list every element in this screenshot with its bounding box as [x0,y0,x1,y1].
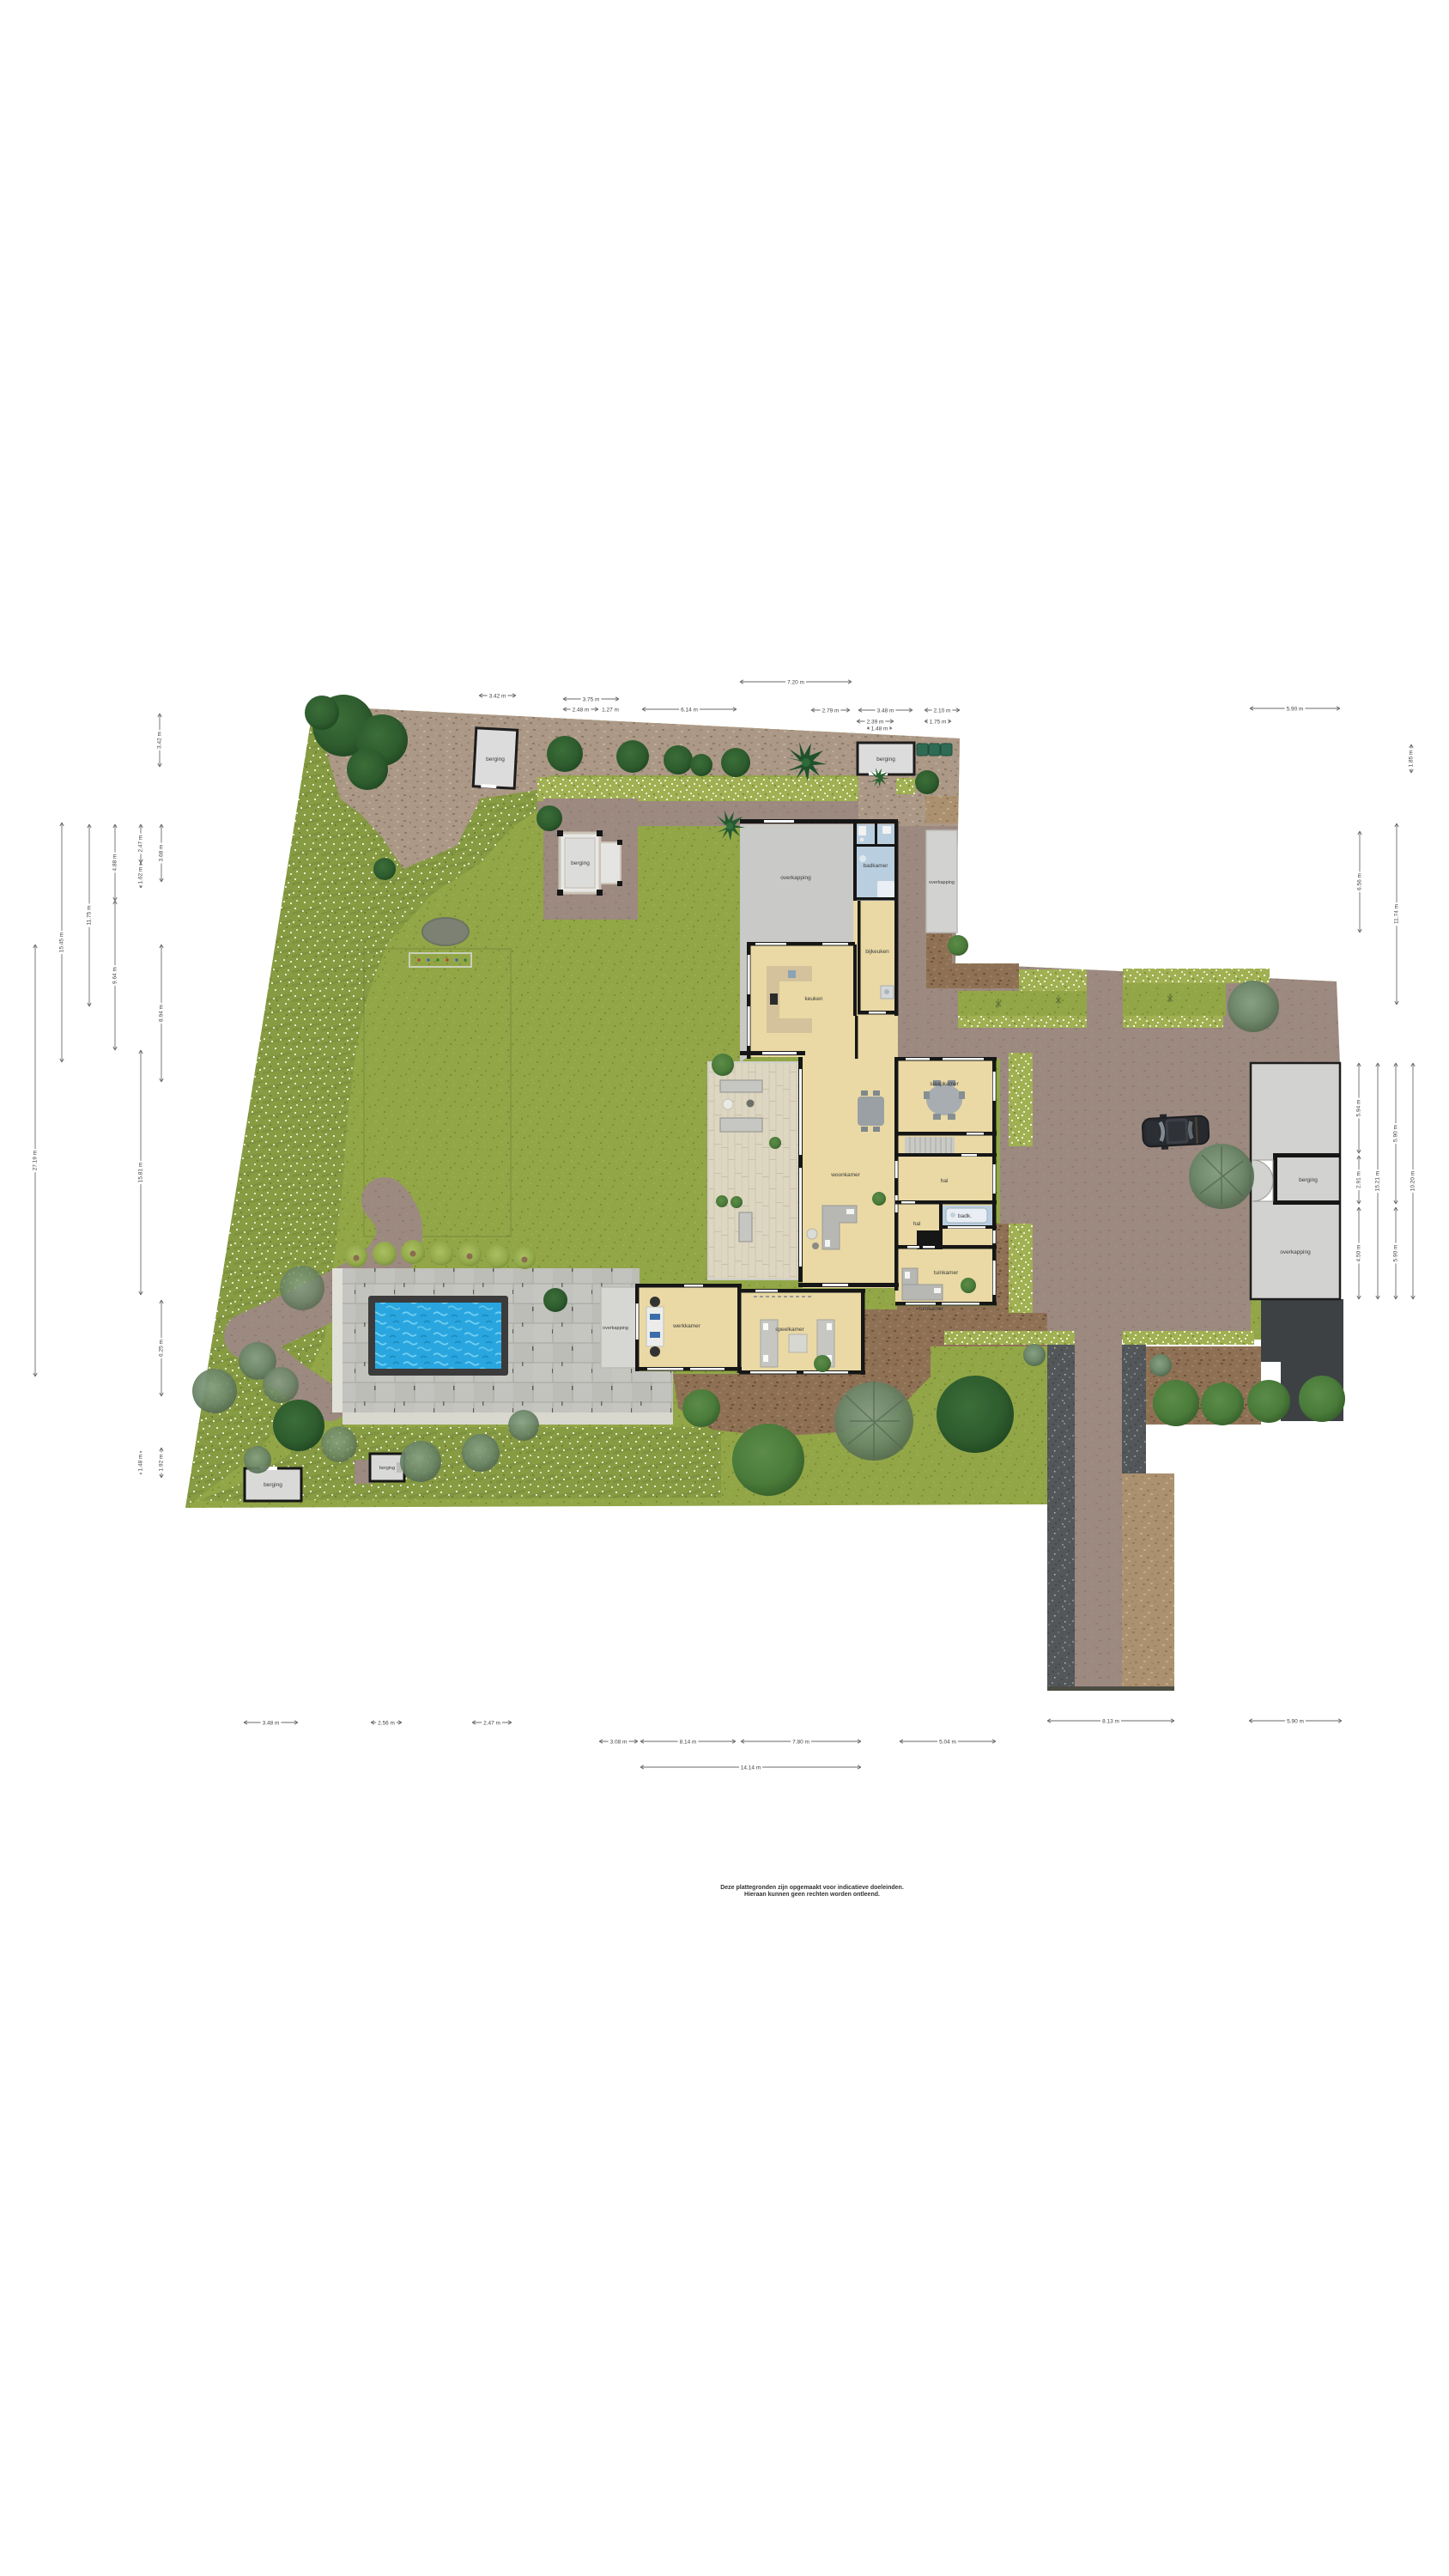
svg-text:11.75 m: 11.75 m [87,905,93,925]
svg-text:6.56 m: 6.56 m [1357,873,1363,890]
svg-text:5.04 m: 5.04 m [939,1739,956,1745]
svg-text:3.75 m: 3.75 m [583,696,600,702]
svg-text:1.48 m: 1.48 m [138,1455,144,1472]
svg-text:Deze plattegronden zijn opgema: Deze plattegronden zijn opgemaakt voor i… [720,1885,904,1891]
svg-text:hal: hal [941,1178,949,1184]
svg-text:hal: hal [913,1221,921,1227]
svg-text:5.90 m: 5.90 m [1393,1245,1399,1262]
svg-text:4.50 m: 4.50 m [1356,1245,1362,1262]
svg-text:overkapping: overkapping [780,875,811,881]
svg-text:keuken: keuken [805,996,823,1002]
svg-text:15.21 m: 15.21 m [1375,1171,1381,1192]
svg-text:3.68 m: 3.68 m [159,845,165,862]
svg-text:speelkamer: speelkamer [775,1327,804,1333]
svg-text:2.47 m: 2.47 m [138,835,144,853]
svg-text:1.48 m: 1.48 m [871,726,888,732]
svg-text:1.62 m: 1.62 m [138,867,144,884]
svg-text:8.94 m: 8.94 m [159,1005,165,1022]
svg-text:berging: berging [1299,1177,1318,1183]
svg-text:1.85 m: 1.85 m [1409,750,1415,768]
svg-text:2.56 m: 2.56 m [378,1720,395,1726]
svg-text:werkkamer: werkkamer [672,1323,701,1329]
svg-text:berging: berging [876,756,895,762]
svg-text:overkapping: overkapping [603,1326,628,1331]
svg-text:27.19 m: 27.19 m [33,1151,39,1171]
svg-text:1.27 m: 1.27 m [602,707,619,713]
svg-text:3.08 m: 3.08 m [610,1739,627,1745]
svg-text:2.48 m: 2.48 m [573,707,590,713]
svg-text:overkapping: overkapping [1280,1249,1311,1255]
svg-text:5.90 m: 5.90 m [1393,1125,1399,1142]
svg-text:15.45 m: 15.45 m [59,933,65,953]
svg-text:2.39 m: 2.39 m [867,719,884,725]
svg-text:1.75 m: 1.75 m [930,719,947,725]
svg-text:woonkamer: woonkamer [830,1172,860,1178]
svg-text:15.81 m: 15.81 m [138,1163,144,1183]
svg-text:7.80 m: 7.80 m [792,1739,809,1745]
svg-text:badkamer: badkamer [864,863,889,869]
svg-text:tuinkamer: tuinkamer [919,1306,944,1312]
svg-text:6.14 m: 6.14 m [681,707,698,713]
svg-text:2.10 m: 2.10 m [934,708,951,714]
svg-text:5.94 m: 5.94 m [1356,1100,1362,1117]
svg-text:3.42 m: 3.42 m [489,693,506,699]
svg-text:4.88 m: 4.88 m [112,854,118,872]
svg-text:7.20 m: 7.20 m [787,679,804,685]
svg-text:3.48 m: 3.48 m [877,708,894,714]
svg-text:11.74 m: 11.74 m [1394,904,1400,924]
svg-text:berging: berging [379,1466,395,1471]
svg-text:berging: berging [264,1482,282,1488]
svg-text:berging: berging [486,756,505,762]
svg-text:8.13 m: 8.13 m [1102,1718,1119,1724]
svg-text:8.14 m: 8.14 m [680,1739,697,1745]
svg-text:2.79 m: 2.79 m [822,708,840,714]
svg-text:1.92 m: 1.92 m [159,1455,165,1472]
svg-text:badk.: badk. [958,1213,972,1219]
svg-text:3.42 m: 3.42 m [157,732,163,749]
svg-text:5.90 m: 5.90 m [1287,1718,1304,1724]
svg-text:6.25 m: 6.25 m [159,1340,165,1357]
svg-text:berging: berging [571,860,590,866]
svg-text:slaapkamer: slaapkamer [930,1081,959,1087]
svg-text:bijkeuken: bijkeuken [865,949,889,955]
svg-text:Hieraan kunnen geen rechten wo: Hieraan kunnen geen rechten worden ontle… [744,1892,880,1898]
svg-text:tuinkamer: tuinkamer [934,1270,959,1276]
svg-text:5.90 m: 5.90 m [1287,706,1304,712]
svg-text:3.48 m: 3.48 m [263,1720,280,1726]
svg-text:overkapping: overkapping [929,880,955,885]
svg-text:2.91 m: 2.91 m [1356,1171,1362,1188]
svg-text:2.47 m: 2.47 m [483,1720,500,1726]
svg-text:14.14 m: 14.14 m [741,1765,761,1771]
svg-text:9.64 m: 9.64 m [112,967,118,984]
svg-text:10.20 m: 10.20 m [1410,1171,1416,1192]
